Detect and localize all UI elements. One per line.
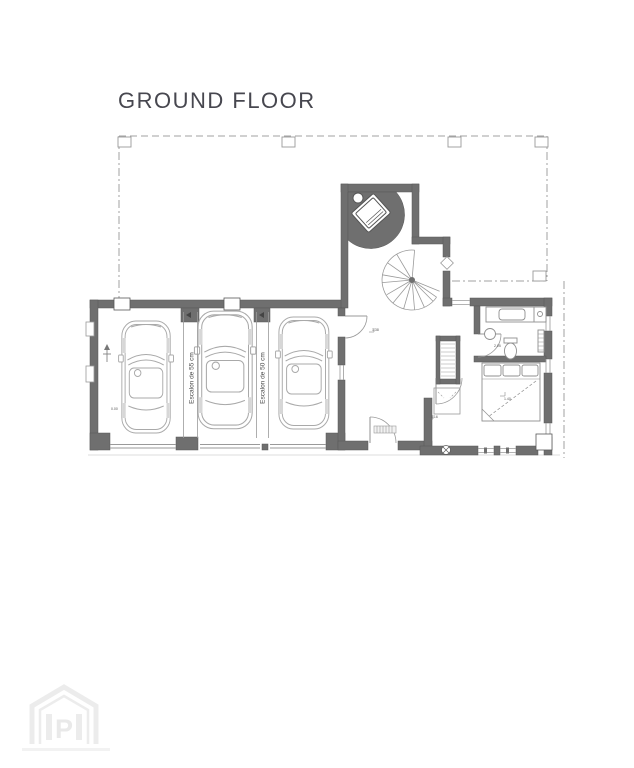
annotation-bedroom: 1.40 — [504, 397, 511, 401]
pillow — [522, 365, 538, 376]
annotation-hall-upper: 1.38 — [372, 328, 379, 332]
round-basin — [485, 329, 496, 340]
garage: Escalon de 55 cm Escalon de 50 cm 0.00 — [103, 311, 332, 448]
bedroom: 1.40 — [482, 363, 540, 421]
doors — [345, 316, 501, 443]
logo-letter: P — [55, 714, 73, 744]
sink-basin — [499, 309, 525, 320]
entry-mat — [374, 426, 396, 433]
car-top-view-3 — [276, 317, 333, 429]
fireplace — [348, 192, 405, 249]
column-axis-mark — [442, 446, 451, 455]
watermark-logo: P — [22, 687, 110, 751]
logo-bar-right — [76, 714, 82, 740]
door-garage-to-hall — [345, 316, 367, 338]
logo-baseline — [22, 748, 110, 751]
flue-icon — [353, 193, 363, 203]
garage-door-lines — [110, 445, 326, 449]
garage-level-arrow — [103, 344, 111, 362]
car-top-view-1 — [119, 321, 174, 433]
logo-bar-left — [46, 714, 52, 740]
annotation-garage: 0.00 — [111, 407, 118, 411]
car-top-view-2 — [194, 311, 255, 429]
floorplan-drawing: Escalon de 55 cm Escalon de 50 cm 0.00 — [0, 0, 634, 768]
pillow — [484, 365, 501, 376]
annotation-hall-lower: 1.16 — [431, 415, 438, 419]
floorplan-page: GROUND FLOOR — [0, 0, 634, 768]
boundary-columns — [118, 137, 548, 281]
drain-icon — [538, 312, 543, 317]
pillow — [503, 365, 520, 376]
step-label-1: Escalon de 55 cm — [189, 352, 196, 404]
closet — [434, 388, 460, 414]
annotation-bathroom: 2.05 — [494, 344, 501, 348]
spiral-staircase — [382, 250, 440, 310]
step-label-2: Escalon de 50 cm — [260, 352, 267, 404]
toilet — [504, 338, 517, 359]
radiator — [538, 330, 544, 352]
